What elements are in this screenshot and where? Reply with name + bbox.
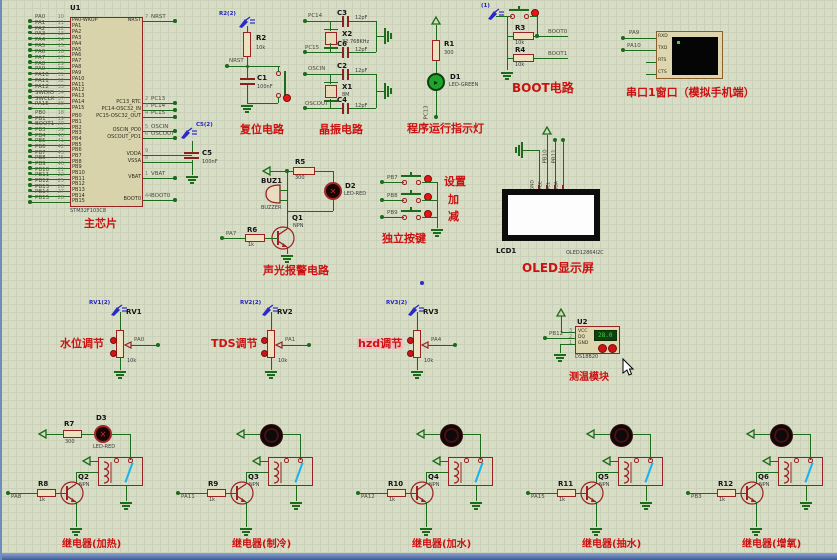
pin-number: 2 <box>145 97 148 102</box>
temp-module-button[interactable] <box>598 344 607 353</box>
junction-dot <box>156 343 160 347</box>
ground-symbol <box>114 371 126 373</box>
ground-symbol <box>265 371 277 373</box>
Q6-ref: Q6 <box>758 474 769 481</box>
R11-val: 1k <box>559 498 565 503</box>
RV1-terminal[interactable] <box>110 337 117 344</box>
c5-body[interactable] <box>184 157 199 159</box>
ground-symbol <box>285 261 289 263</box>
u2-pin-GND: GND <box>578 342 588 347</box>
ground-symbol <box>190 182 194 184</box>
caption-alarm-circuit: 声光报警电路 <box>263 265 329 276</box>
ground-symbol <box>290 502 302 504</box>
caption-temp-module: 测温模块 <box>569 373 609 383</box>
wire <box>376 91 384 92</box>
motor-core <box>264 428 279 443</box>
xtal-X2 <box>324 47 338 49</box>
motor-2[interactable] <box>260 424 283 447</box>
origin-marker <box>420 281 424 285</box>
pin-number: 28 <box>50 196 64 201</box>
wire <box>226 493 237 494</box>
xtal-X2 <box>324 29 338 31</box>
pin-wire <box>143 200 175 201</box>
wire <box>424 434 440 435</box>
xtal-X1[interactable] <box>325 85 337 98</box>
R11-ref: R11 <box>558 481 573 488</box>
pin-name: PC13_RTC <box>85 100 141 105</box>
pin-dot <box>173 101 177 105</box>
wire <box>126 486 127 501</box>
probe-c5[interactable] <box>180 127 198 139</box>
r3-body[interactable] <box>513 32 534 40</box>
xtal-ref: X2 <box>342 31 352 38</box>
relay-coil <box>620 461 634 484</box>
wire <box>561 332 575 333</box>
oled-ref: LCD1 <box>496 248 516 255</box>
d3-ref: D3 <box>96 415 107 422</box>
power-arrow-icon <box>431 16 441 25</box>
motor-core <box>614 428 629 443</box>
terminal-cursor <box>677 41 680 44</box>
pin-name: BOOT0 <box>85 197 141 202</box>
Q2-ref: Q2 <box>78 474 89 481</box>
pin-wire <box>143 117 175 118</box>
reset-button-actuator[interactable] <box>283 94 291 102</box>
ground-symbol <box>420 528 432 530</box>
terminal-pin-RTS: RTS <box>658 59 666 64</box>
wire <box>422 200 437 201</box>
r1-ref: R1 <box>444 41 454 48</box>
key-button-PB8-stem <box>410 190 412 193</box>
ground-symbol <box>592 531 600 533</box>
wire <box>90 461 98 462</box>
wire <box>426 502 427 527</box>
net-label-PB7: PB7 <box>387 176 398 182</box>
wire <box>56 493 67 494</box>
R10-val: 1k <box>389 498 395 503</box>
ground-symbol <box>752 531 760 533</box>
wire <box>756 502 757 527</box>
wire <box>244 434 260 435</box>
pin-name: PA15 <box>72 106 84 111</box>
pin-wire <box>143 178 175 179</box>
ground-symbol <box>515 147 517 153</box>
net-label-PC14: PC14 <box>151 104 165 110</box>
wire <box>283 434 300 435</box>
junction-dot <box>434 115 438 119</box>
net-label-PA1-pot: PA1 <box>285 338 295 344</box>
wire <box>530 16 537 17</box>
pin-name: NRST <box>85 18 141 23</box>
RV2-ref: RV2 <box>277 309 293 316</box>
r6-body[interactable] <box>245 234 265 242</box>
led-d3[interactable]: ✕ <box>94 425 112 443</box>
RV1-body[interactable] <box>116 330 124 358</box>
wire <box>436 25 437 40</box>
wire <box>440 461 448 462</box>
net-label-PA0-pot: PA0 <box>134 338 144 344</box>
pin-name: PB15 <box>72 199 85 204</box>
boot-button-terminal[interactable] <box>524 14 529 19</box>
wire <box>406 493 417 494</box>
wire <box>610 461 618 462</box>
junction-dot <box>225 64 229 68</box>
ground-symbol <box>390 88 392 94</box>
wire <box>246 502 247 527</box>
wire <box>623 50 656 51</box>
net-label-PA11-relay: PA11 <box>181 495 195 501</box>
wire <box>754 434 770 435</box>
ground-symbol <box>240 528 252 530</box>
cap-val: 12pF <box>355 104 367 109</box>
wire <box>528 493 557 494</box>
pin-number: 6 <box>145 132 148 137</box>
pin-number: 1 <box>145 172 148 177</box>
ground-symbol <box>387 86 389 97</box>
probe-label-boot: (1) <box>481 4 490 10</box>
RV1-ref: RV1 <box>126 309 142 316</box>
wire <box>282 345 309 346</box>
xtal-X1 <box>324 82 338 84</box>
R9-body[interactable] <box>207 489 226 497</box>
net-label-OSCIN: OSCIN <box>151 125 168 131</box>
r4-ref: R4 <box>515 47 525 54</box>
wire <box>382 182 404 183</box>
boot-button-bar <box>509 9 529 11</box>
wire <box>315 171 333 172</box>
ground-symbol <box>283 258 291 260</box>
key-button-PB7-bar <box>401 175 421 177</box>
led-glyph: ▸ <box>434 78 438 87</box>
wire <box>417 312 418 330</box>
d1-ref: D1 <box>450 74 461 81</box>
probe-label-c5: C5(2) <box>196 123 213 129</box>
temp-module-button[interactable] <box>608 344 617 353</box>
relay-terminal <box>794 458 799 463</box>
net-label-PA4-pot: PA4 <box>431 338 441 344</box>
R9-val: 1k <box>209 498 215 503</box>
u2-pin-DQ: DQ <box>578 336 585 341</box>
c5-val: 100nF <box>202 160 218 165</box>
motor-core <box>444 428 459 443</box>
pin-wire <box>143 138 175 139</box>
cap-ref: C2 <box>337 63 347 70</box>
junction-dot <box>535 34 539 38</box>
RV2-val: 10k <box>278 359 287 364</box>
wire <box>349 74 376 75</box>
RV1-terminal[interactable] <box>110 350 117 357</box>
pin-name: VSSA <box>85 159 141 164</box>
Q4-val: NPN <box>429 483 440 488</box>
net-label-pa10: PA10 <box>627 44 641 50</box>
R8-body[interactable] <box>37 489 56 497</box>
RV1-val: 10k <box>127 359 136 364</box>
wire <box>688 493 717 494</box>
net-label-PC13: PC13 <box>151 97 165 103</box>
u2-pin-VCC: VCC <box>578 330 587 335</box>
Q2-val: NPN <box>79 483 90 488</box>
wire <box>437 182 438 228</box>
net-label-pc13-vert: PC13 <box>425 105 431 119</box>
r5-body[interactable] <box>293 167 315 175</box>
boot-button-terminal[interactable] <box>510 14 515 19</box>
R10-body[interactable] <box>387 489 406 497</box>
net-label-PC15: PC15 <box>151 111 165 117</box>
ground-symbol <box>433 232 441 234</box>
wire <box>46 434 63 435</box>
ground-symbol <box>120 502 132 504</box>
wire <box>623 38 656 39</box>
wire <box>247 85 248 103</box>
wire <box>178 493 207 494</box>
wire <box>476 486 477 501</box>
oled-part: OLED12864I2C <box>566 251 604 256</box>
net-label-NRST: NRST <box>151 15 166 21</box>
wire <box>436 61 437 73</box>
wire <box>534 36 568 37</box>
wire <box>646 74 656 75</box>
ground-symbol <box>74 534 78 536</box>
wire <box>596 502 597 527</box>
ground-symbol <box>415 377 419 379</box>
capacitor-body[interactable] <box>342 103 344 114</box>
RV3-terminal[interactable] <box>407 350 414 357</box>
u2-ref: U2 <box>577 319 588 326</box>
wire <box>287 211 333 212</box>
d2-val: LED-RED <box>344 192 366 197</box>
key-button-PB9-bar <box>401 210 421 212</box>
probe-label-RV2: RV2(2) <box>240 301 261 307</box>
window-left-edge <box>0 0 2 560</box>
net-label-PA15: PA15 <box>35 102 49 108</box>
relay-terminal <box>464 458 469 463</box>
Q5-val: NPN <box>599 483 610 488</box>
wire <box>227 66 280 67</box>
cap-ref: C3 <box>337 10 347 17</box>
capacitor-body[interactable] <box>342 16 344 27</box>
net-label-PB3-relay: PB3 <box>691 495 702 501</box>
wire <box>271 358 272 370</box>
ground-symbol <box>70 528 82 530</box>
relay-terminal <box>634 458 639 463</box>
ground-symbol <box>754 534 758 536</box>
net-label-boot0: BOOT0 <box>548 30 567 36</box>
oled-module[interactable] <box>502 189 600 241</box>
ground-symbol <box>118 377 122 379</box>
q1-ref: Q1 <box>292 215 303 222</box>
wire <box>305 52 342 53</box>
wire <box>280 200 287 201</box>
ground-symbol <box>281 255 293 257</box>
Q4-ref: Q4 <box>428 474 439 481</box>
net-label-nrst: NRST <box>229 59 244 65</box>
caption-run-indicator: 程序运行指示灯 <box>407 123 484 134</box>
ground-symbol <box>644 508 648 510</box>
pin-number: 5 <box>145 125 148 130</box>
caption-relay-1: 继电器(加热) <box>62 540 121 550</box>
capacitor-body[interactable] <box>342 69 344 80</box>
xtal-X2[interactable] <box>325 32 337 45</box>
wire <box>793 434 810 435</box>
junction-dot <box>453 343 457 347</box>
r1-body[interactable] <box>432 40 440 61</box>
net-label-VBAT: VBAT <box>151 172 165 178</box>
key-label-PB7: 设置 <box>444 176 466 187</box>
r5-val: 300 <box>295 176 305 181</box>
xtal-val: 32.768KHz <box>342 40 369 45</box>
Q6-val: NPN <box>759 483 770 488</box>
capacitor-body[interactable] <box>342 47 344 58</box>
ground-symbol <box>384 28 386 44</box>
buzzer-symbol[interactable] <box>264 184 282 204</box>
r4-body[interactable] <box>513 54 534 62</box>
wire <box>305 74 342 75</box>
key-button-PB8-terminal[interactable] <box>416 198 421 203</box>
RV3-terminal[interactable] <box>407 337 414 344</box>
R12-body[interactable] <box>717 489 736 497</box>
c1-val: 100nF <box>257 85 273 90</box>
pin-name: PA10 <box>72 77 84 82</box>
caption-boot-circuit: BOOT电路 <box>512 82 574 94</box>
RV2-body[interactable] <box>267 330 275 358</box>
reset-button-terminal[interactable] <box>276 71 281 76</box>
wire <box>560 344 561 353</box>
wire <box>287 171 288 229</box>
probe-label-r2: R2(2) <box>219 12 236 18</box>
c5-ref: C5 <box>202 150 212 157</box>
xtal-val: 8M <box>342 93 350 98</box>
motor-3[interactable] <box>440 424 463 447</box>
wire <box>271 312 272 330</box>
wire <box>576 493 587 494</box>
R8-ref: R8 <box>38 481 48 488</box>
wire <box>131 345 158 346</box>
buz1-val: BUZZER <box>261 206 282 211</box>
motor-5[interactable] <box>770 424 793 447</box>
net-label-oled-scl: PB10 <box>544 149 550 163</box>
cap-ref: C4 <box>337 97 347 104</box>
R12-val: 1k <box>719 498 725 503</box>
net-label-OSCOUT: OSCOUT <box>151 132 174 138</box>
pin-name: VDDA <box>85 152 141 157</box>
ground-symbol <box>556 357 564 359</box>
net-label-PB15: PB15 <box>35 196 49 202</box>
power-arrow-icon <box>542 126 552 135</box>
led-d1[interactable]: ▸ <box>427 73 445 91</box>
RV3-body[interactable] <box>413 330 421 358</box>
r7-body[interactable] <box>63 430 82 438</box>
q1-val: NPN <box>293 224 304 229</box>
boot-button-stem <box>518 6 520 9</box>
c1-body[interactable] <box>240 78 255 80</box>
wire <box>806 486 807 501</box>
wire <box>305 21 342 22</box>
ground-symbol <box>294 508 298 510</box>
wire <box>560 344 575 345</box>
R12-ref: R12 <box>718 481 733 488</box>
d2-ref: D2 <box>345 183 356 190</box>
ground-symbol <box>503 75 511 77</box>
pin-number: 9 <box>145 149 148 154</box>
chip-ref: U1 <box>70 5 81 12</box>
ground-symbol <box>186 176 198 178</box>
r2-ref: R2 <box>256 35 266 42</box>
ground-symbol <box>750 528 762 530</box>
r6-ref: R6 <box>247 227 257 234</box>
net-label-PB8: PB8 <box>387 194 398 200</box>
r2-body[interactable] <box>243 32 251 57</box>
net-label-PA15-relay: PA15 <box>531 495 545 501</box>
wire <box>563 140 564 189</box>
wire <box>8 493 37 494</box>
wire <box>270 171 293 172</box>
ground-symbol <box>243 108 251 110</box>
ground-symbol <box>505 78 509 80</box>
terminal-pin-TXD: TXD <box>658 47 667 52</box>
r7-ref: R7 <box>64 421 74 428</box>
ground-symbol <box>387 31 389 42</box>
RV2-terminal[interactable] <box>261 337 268 344</box>
ground-symbol <box>384 83 386 99</box>
wire <box>436 91 437 117</box>
ground-symbol <box>390 33 392 39</box>
key-button-PB9-terminal[interactable] <box>416 215 421 220</box>
pin-dot <box>173 108 177 112</box>
caption-relay-3: 继电器(加水) <box>412 540 471 550</box>
probe-boot[interactable] <box>487 8 505 20</box>
c5-body[interactable] <box>184 152 199 154</box>
R8-val: 1k <box>39 498 45 503</box>
ground-symbol <box>642 505 650 507</box>
cap-val: 12pF <box>355 16 367 21</box>
ground-symbol <box>472 505 480 507</box>
key-button-PB7-terminal[interactable] <box>402 180 407 185</box>
wire <box>305 108 342 109</box>
net-label-boot1: BOOT1 <box>548 52 567 58</box>
schematic-canvas[interactable]: 主芯片 复位电路 晶振电路 程序运行指示灯 BOOT电路 串口1窗口（模拟手机端… <box>0 0 837 560</box>
net-label-pb12: PB12 <box>549 332 563 338</box>
RV2-terminal[interactable] <box>261 350 268 357</box>
caption-serial-window: 串口1窗口（模拟手机端） <box>626 87 755 98</box>
motor-4[interactable] <box>610 424 633 447</box>
R9-ref: R9 <box>208 481 218 488</box>
caption-RV3: hzd调节 <box>357 338 403 349</box>
ground-symbol <box>245 111 249 113</box>
wire <box>120 312 121 330</box>
led-d2[interactable]: ✕ <box>324 182 342 200</box>
R11-body[interactable] <box>557 489 576 497</box>
wire <box>428 345 455 346</box>
mouse-cursor <box>622 358 634 376</box>
pin-wire <box>30 202 70 203</box>
wire <box>382 200 404 201</box>
pin-name: PC14-OSC32_IN <box>85 107 141 112</box>
key-button-PB8-terminal[interactable] <box>402 198 407 203</box>
key-button-PB7-stem <box>410 172 412 175</box>
wire <box>417 358 418 370</box>
ground-symbol <box>640 502 652 504</box>
temp-display-value: 28.0 <box>598 333 612 339</box>
key-button-PB7-terminal[interactable] <box>416 180 421 185</box>
wire <box>561 316 562 332</box>
key-label-PB8: 加 <box>448 194 459 205</box>
ground-symbol <box>124 508 128 510</box>
ground-symbol <box>501 72 513 74</box>
ground-symbol <box>72 531 80 533</box>
pin-name: PA4 <box>72 42 81 47</box>
key-button-PB9-terminal[interactable] <box>402 215 407 220</box>
ground-symbol <box>802 505 810 507</box>
